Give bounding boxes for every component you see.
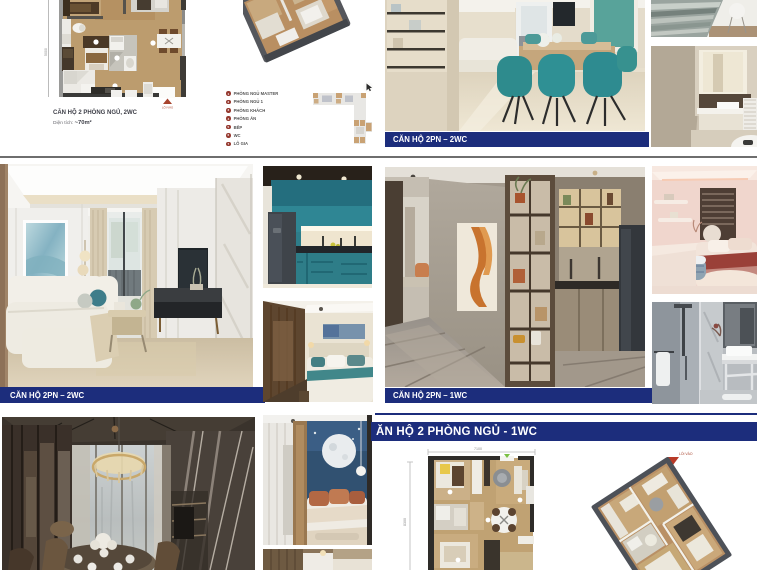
svg-text:8300: 8300 bbox=[403, 518, 407, 526]
svg-text:LỐI VÀO: LỐI VÀO bbox=[162, 105, 174, 110]
svg-text:LỐI VÀO: LỐI VÀO bbox=[679, 451, 693, 456]
svg-text:7100: 7100 bbox=[474, 447, 482, 451]
